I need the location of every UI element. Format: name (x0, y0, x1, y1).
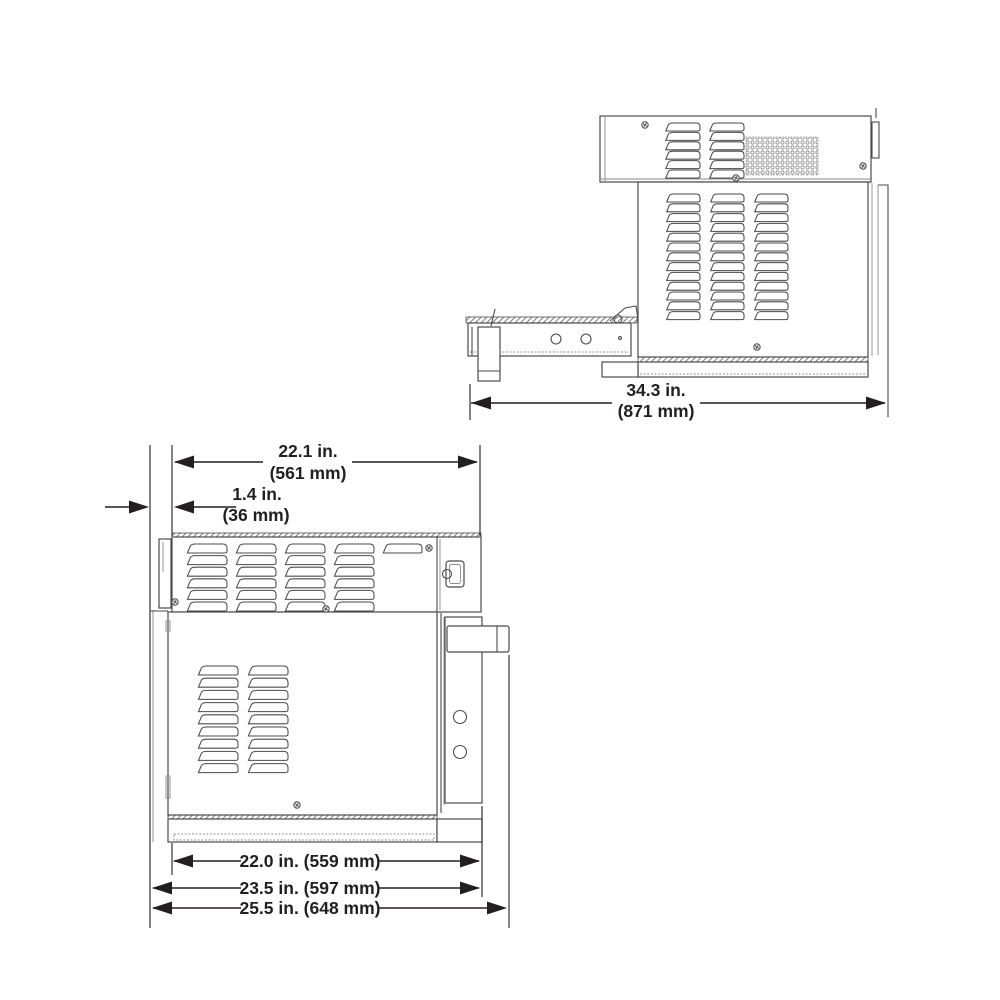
dim-width-top-mm-label: (561 mm) (270, 463, 347, 483)
dimension-diagram: 34.3 in. (871 mm) 22.1 in. (561 mm) 1.4 … (0, 0, 1000, 1000)
dim-offset-in-label: 1.4 in. (232, 484, 282, 504)
louver (285, 602, 325, 611)
louver (666, 161, 700, 169)
louver (666, 123, 700, 131)
dimension-arrowhead (152, 882, 172, 895)
louver (248, 764, 288, 773)
louver (755, 194, 788, 202)
louver (187, 567, 227, 576)
louver (666, 170, 700, 178)
screw-icon (754, 344, 760, 350)
louver (198, 690, 238, 699)
louver (667, 292, 700, 300)
screw-icon (172, 599, 178, 605)
dim-width-mid-label: 23.5 in. (597 mm) (239, 878, 380, 898)
louver (198, 739, 238, 748)
dimension-arrowhead (471, 397, 491, 410)
technical-drawing-page: 34.3 in. (871 mm) 22.1 in. (561 mm) 1.4 … (0, 0, 1000, 1000)
mesh-vent (746, 137, 818, 175)
louver (711, 272, 744, 280)
louver (666, 151, 700, 159)
louver (710, 123, 744, 131)
dim-depth-mm-label: (871 mm) (618, 401, 695, 421)
left-hinge-strip (159, 539, 171, 608)
louver (285, 544, 325, 553)
dimension-width-mid: 23.5 in. (597 mm) (153, 878, 479, 898)
louver (187, 556, 227, 565)
louver (248, 727, 288, 736)
louver (285, 590, 325, 599)
louver (334, 556, 374, 565)
louver (334, 590, 374, 599)
louver (187, 590, 227, 599)
dimension-arrowhead (487, 902, 507, 915)
louver (710, 161, 744, 169)
dimension-arrowhead (460, 882, 480, 895)
louver (198, 715, 238, 724)
dimension-width-inner: 22.0 in. (559 mm) (174, 851, 479, 871)
base-hatch-strip (638, 357, 868, 362)
rear-flange (878, 185, 888, 417)
louver (711, 282, 744, 290)
louver (248, 715, 288, 724)
louver (334, 544, 374, 553)
rail-foot (478, 327, 500, 381)
louver (755, 233, 788, 241)
louver (711, 263, 744, 271)
louver (187, 544, 227, 553)
dimension-width-outer: 25.5 in. (648 mm) (153, 898, 496, 918)
louver (710, 132, 744, 140)
bracket-arm (447, 626, 509, 652)
screw-icon (642, 122, 648, 128)
louver (711, 292, 744, 300)
dimension-arrowhead (458, 456, 478, 469)
louver (198, 751, 238, 760)
louver (248, 666, 288, 675)
louver (755, 223, 788, 231)
louver (334, 579, 374, 588)
louver (711, 194, 744, 202)
front-base-right (437, 819, 482, 842)
louver (198, 678, 238, 687)
louver (198, 703, 238, 712)
louver (711, 302, 744, 310)
louver (755, 204, 788, 212)
side-base-step (602, 362, 638, 377)
dimension-arrowhead (174, 456, 194, 469)
side-view (466, 108, 888, 417)
dimension-arrowhead (173, 855, 193, 868)
louver (285, 579, 325, 588)
louver (711, 312, 744, 320)
louver (236, 556, 276, 565)
louver (667, 223, 700, 231)
screw-icon (294, 802, 300, 808)
screw-icon (426, 545, 432, 551)
dim-width-inner-label: 22.0 in. (559 mm) (239, 851, 380, 871)
louver (187, 602, 227, 611)
louver (755, 272, 788, 280)
louver (334, 602, 374, 611)
louver (667, 263, 700, 271)
louver (667, 194, 700, 202)
louver (198, 727, 238, 736)
dimension-arrowhead (460, 855, 480, 868)
louver (667, 214, 700, 222)
front-base (168, 819, 437, 842)
dim-depth-in-label: 34.3 in. (626, 380, 685, 400)
louver (711, 214, 744, 222)
louver (236, 579, 276, 588)
louver (755, 263, 788, 271)
louver (667, 282, 700, 290)
louver (187, 579, 227, 588)
dimension-arrowhead (129, 501, 149, 514)
louver (755, 243, 788, 251)
louver (236, 567, 276, 576)
dimension-arrowhead (174, 501, 194, 514)
louver (711, 204, 744, 212)
louver (755, 282, 788, 290)
louver (667, 243, 700, 251)
screw-icon (733, 175, 739, 181)
dimension-width-top: 22.1 in. (561 mm) (175, 441, 477, 483)
dimension-depth: 34.3 in. (871 mm) (471, 380, 885, 421)
dimension-arrowhead (866, 397, 886, 410)
louver (248, 739, 288, 748)
louver (711, 223, 744, 231)
louver (198, 764, 238, 773)
louver (667, 233, 700, 241)
louver (383, 544, 422, 553)
louver (248, 751, 288, 760)
louver (285, 556, 325, 565)
louver (667, 312, 700, 320)
dim-offset-mm-label: (36 mm) (222, 505, 289, 525)
louver (248, 703, 288, 712)
louver (666, 142, 700, 150)
dim-width-top-in-label: 22.1 in. (278, 441, 337, 461)
side-base (638, 362, 868, 377)
screw-icon (323, 606, 329, 612)
louver (755, 302, 788, 310)
louver (236, 544, 276, 553)
louver (711, 233, 744, 241)
louver (711, 243, 744, 251)
screw-icon (860, 163, 866, 169)
louver (710, 142, 744, 150)
louver (248, 690, 288, 699)
louver (755, 312, 788, 320)
louver (248, 678, 288, 687)
louver (285, 567, 325, 576)
louver (667, 253, 700, 261)
louver (755, 214, 788, 222)
louver (667, 302, 700, 310)
lid-right-bracket (872, 122, 879, 158)
front-body-panel (168, 612, 437, 815)
louver (711, 253, 744, 261)
louver (334, 567, 374, 576)
louver (710, 151, 744, 159)
louver (667, 204, 700, 212)
louver (667, 272, 700, 280)
louver (236, 602, 276, 611)
dimension-arrowhead (152, 902, 172, 915)
louver (236, 590, 276, 599)
louver (666, 132, 700, 140)
louver (198, 666, 238, 675)
dim-width-outer-label: 25.5 in. (648 mm) (239, 898, 380, 918)
power-inlet (443, 561, 465, 587)
louver (755, 292, 788, 300)
louver (755, 253, 788, 261)
